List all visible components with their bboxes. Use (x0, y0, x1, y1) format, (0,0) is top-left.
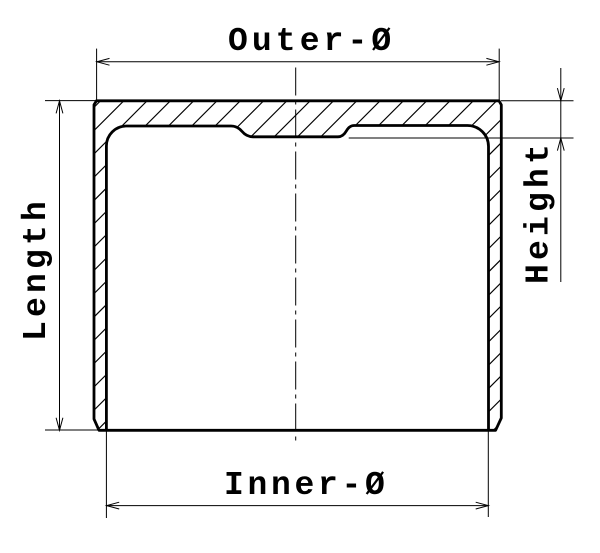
svg-text:Inner-Ø: Inner-Ø (224, 467, 389, 504)
svg-text:Height: Height (521, 140, 558, 284)
svg-text:Outer-Ø: Outer-Ø (228, 23, 395, 60)
svg-text:Length: Length (18, 197, 55, 341)
